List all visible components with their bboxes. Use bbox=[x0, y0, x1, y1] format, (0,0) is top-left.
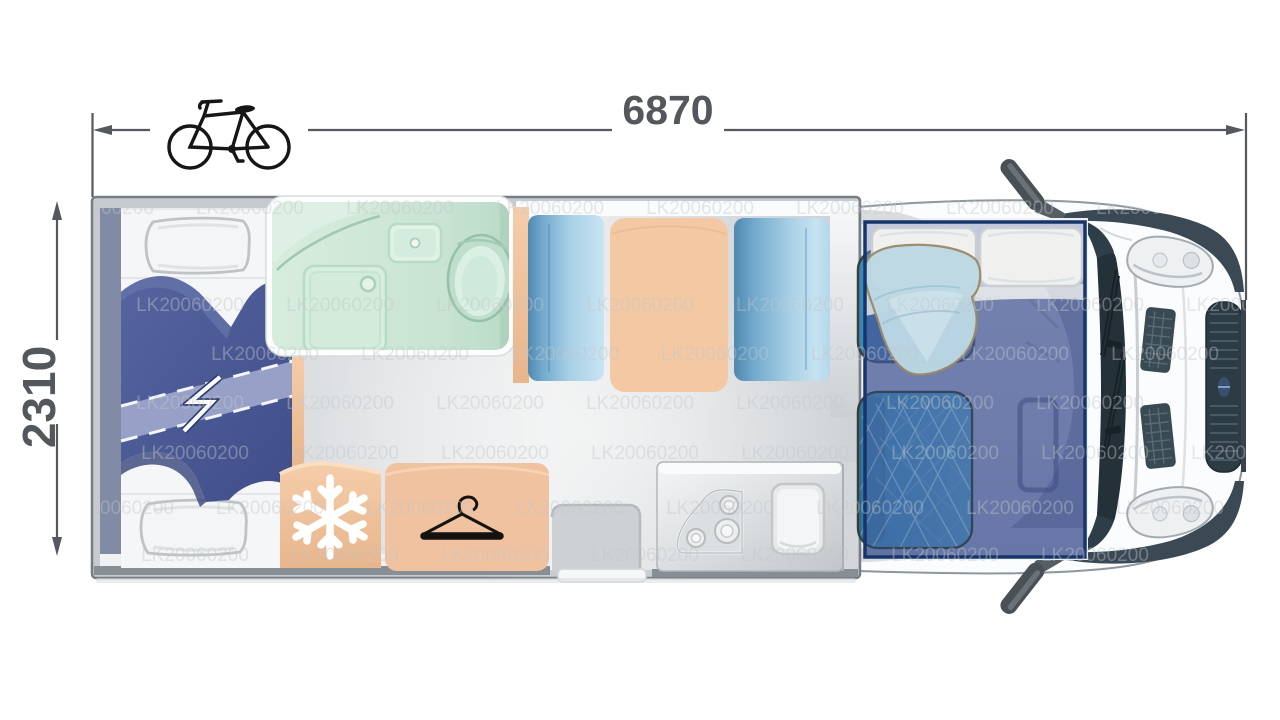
svg-text:LK20060200: LK20060200 bbox=[646, 198, 754, 219]
svg-text:LK20060200: LK20060200 bbox=[346, 198, 454, 219]
svg-text:LK20060200: LK20060200 bbox=[436, 295, 544, 316]
svg-text:LK20060200: LK20060200 bbox=[196, 198, 304, 219]
svg-text:LK20060200: LK20060200 bbox=[1041, 443, 1149, 464]
svg-text:LK20060200: LK20060200 bbox=[136, 393, 244, 414]
svg-text:LK20060200: LK20060200 bbox=[586, 295, 694, 316]
svg-text:LK20060200: LK20060200 bbox=[666, 498, 774, 519]
svg-text:LK20060200: LK20060200 bbox=[891, 443, 999, 464]
svg-text:LK20060200: LK20060200 bbox=[291, 545, 399, 566]
svg-text:LK20060200: LK20060200 bbox=[586, 393, 694, 414]
svg-text:LK20060200: LK20060200 bbox=[141, 545, 249, 566]
svg-text:LK20060200: LK20060200 bbox=[436, 393, 544, 414]
svg-text:LK20060200: LK20060200 bbox=[591, 545, 699, 566]
svg-text:2310: 2310 bbox=[13, 346, 65, 448]
svg-text:LK20060200: LK20060200 bbox=[736, 295, 844, 316]
svg-text:LK20060200: LK20060200 bbox=[216, 498, 324, 519]
svg-text:LK20060200: LK20060200 bbox=[891, 545, 999, 566]
svg-text:LK20060200: LK20060200 bbox=[1036, 393, 1144, 414]
svg-text:LK20060200: LK20060200 bbox=[211, 344, 319, 365]
svg-text:LK20060200: LK20060200 bbox=[366, 498, 474, 519]
svg-text:LK20060200: LK20060200 bbox=[1116, 498, 1224, 519]
svg-text:LK20060200: LK20060200 bbox=[496, 198, 604, 219]
svg-text:LK20060200: LK20060200 bbox=[816, 498, 924, 519]
svg-text:LK20060200: LK20060200 bbox=[441, 545, 549, 566]
svg-text:LK20060200: LK20060200 bbox=[591, 443, 699, 464]
svg-text:LK20060200: LK20060200 bbox=[141, 443, 249, 464]
svg-text:LK20060200: LK20060200 bbox=[136, 295, 244, 316]
svg-text:LK20060200: LK20060200 bbox=[741, 545, 849, 566]
svg-text:LK20060200: LK20060200 bbox=[741, 443, 849, 464]
svg-text:LK20060200: LK20060200 bbox=[1041, 545, 1149, 566]
svg-text:LK20060200: LK20060200 bbox=[1036, 295, 1144, 316]
svg-text:LK20060200: LK20060200 bbox=[886, 393, 994, 414]
svg-text:LK20060200: LK20060200 bbox=[1111, 344, 1219, 365]
svg-text:LK20060200: LK20060200 bbox=[286, 295, 394, 316]
svg-text:LK20060200: LK20060200 bbox=[291, 443, 399, 464]
svg-text:LK20060200: LK20060200 bbox=[736, 393, 844, 414]
svg-text:LK20060200: LK20060200 bbox=[511, 344, 619, 365]
svg-text:LK20060200: LK20060200 bbox=[811, 344, 919, 365]
svg-text:LK20060200: LK20060200 bbox=[946, 198, 1054, 219]
svg-text:LK20060200: LK20060200 bbox=[286, 393, 394, 414]
svg-text:LK20060200: LK20060200 bbox=[796, 198, 904, 219]
svg-text:LK20060200: LK20060200 bbox=[966, 498, 1074, 519]
svg-text:LK20060200: LK20060200 bbox=[661, 344, 769, 365]
svg-text:LK20060200: LK20060200 bbox=[516, 498, 624, 519]
svg-text:6870: 6870 bbox=[622, 87, 713, 133]
svg-text:LK20060200: LK20060200 bbox=[361, 344, 469, 365]
svg-text:LK20060200: LK20060200 bbox=[961, 344, 1069, 365]
svg-text:LK20060200: LK20060200 bbox=[886, 295, 994, 316]
svg-text:LK20060200: LK20060200 bbox=[441, 443, 549, 464]
